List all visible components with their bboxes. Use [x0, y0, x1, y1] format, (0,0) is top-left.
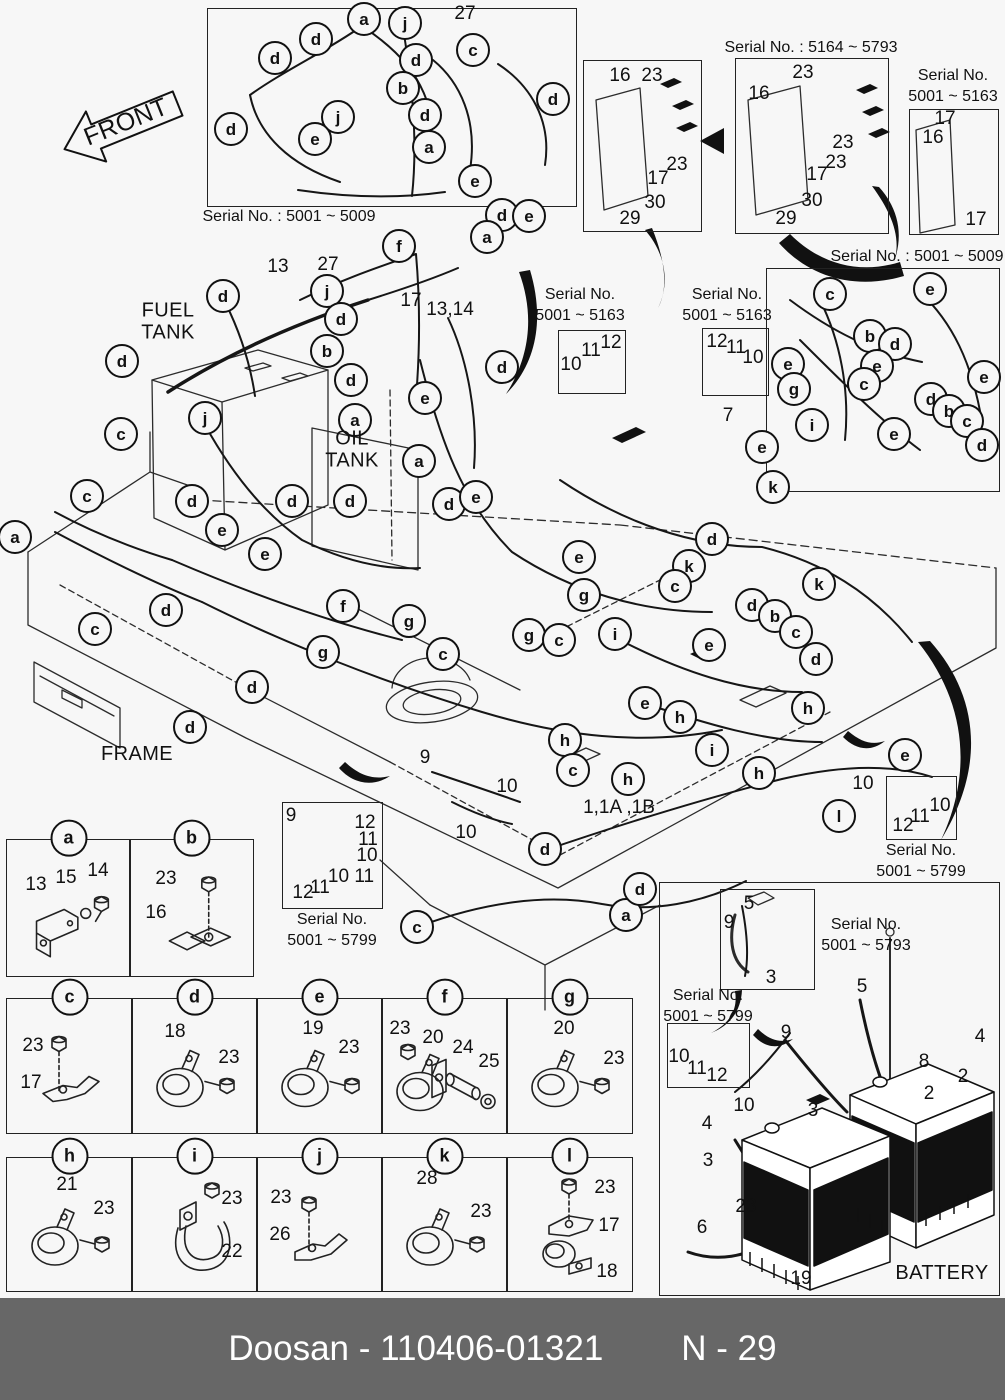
pointer-swooshes	[339, 78, 971, 1105]
footer-figure-number: Doosan - 110406-01321	[228, 1329, 603, 1369]
front-arrow-icon	[54, 78, 187, 174]
parts-diagram-page: Serial No. : 5001 ~ 5009Serial No. : 516…	[0, 0, 1005, 1400]
footer-bar: Doosan - 110406-01321 N - 29	[0, 1298, 1005, 1400]
battery-drawing	[742, 1064, 994, 1290]
diagram-artwork	[0, 0, 1005, 1400]
footer-page-code: N - 29	[681, 1329, 776, 1369]
